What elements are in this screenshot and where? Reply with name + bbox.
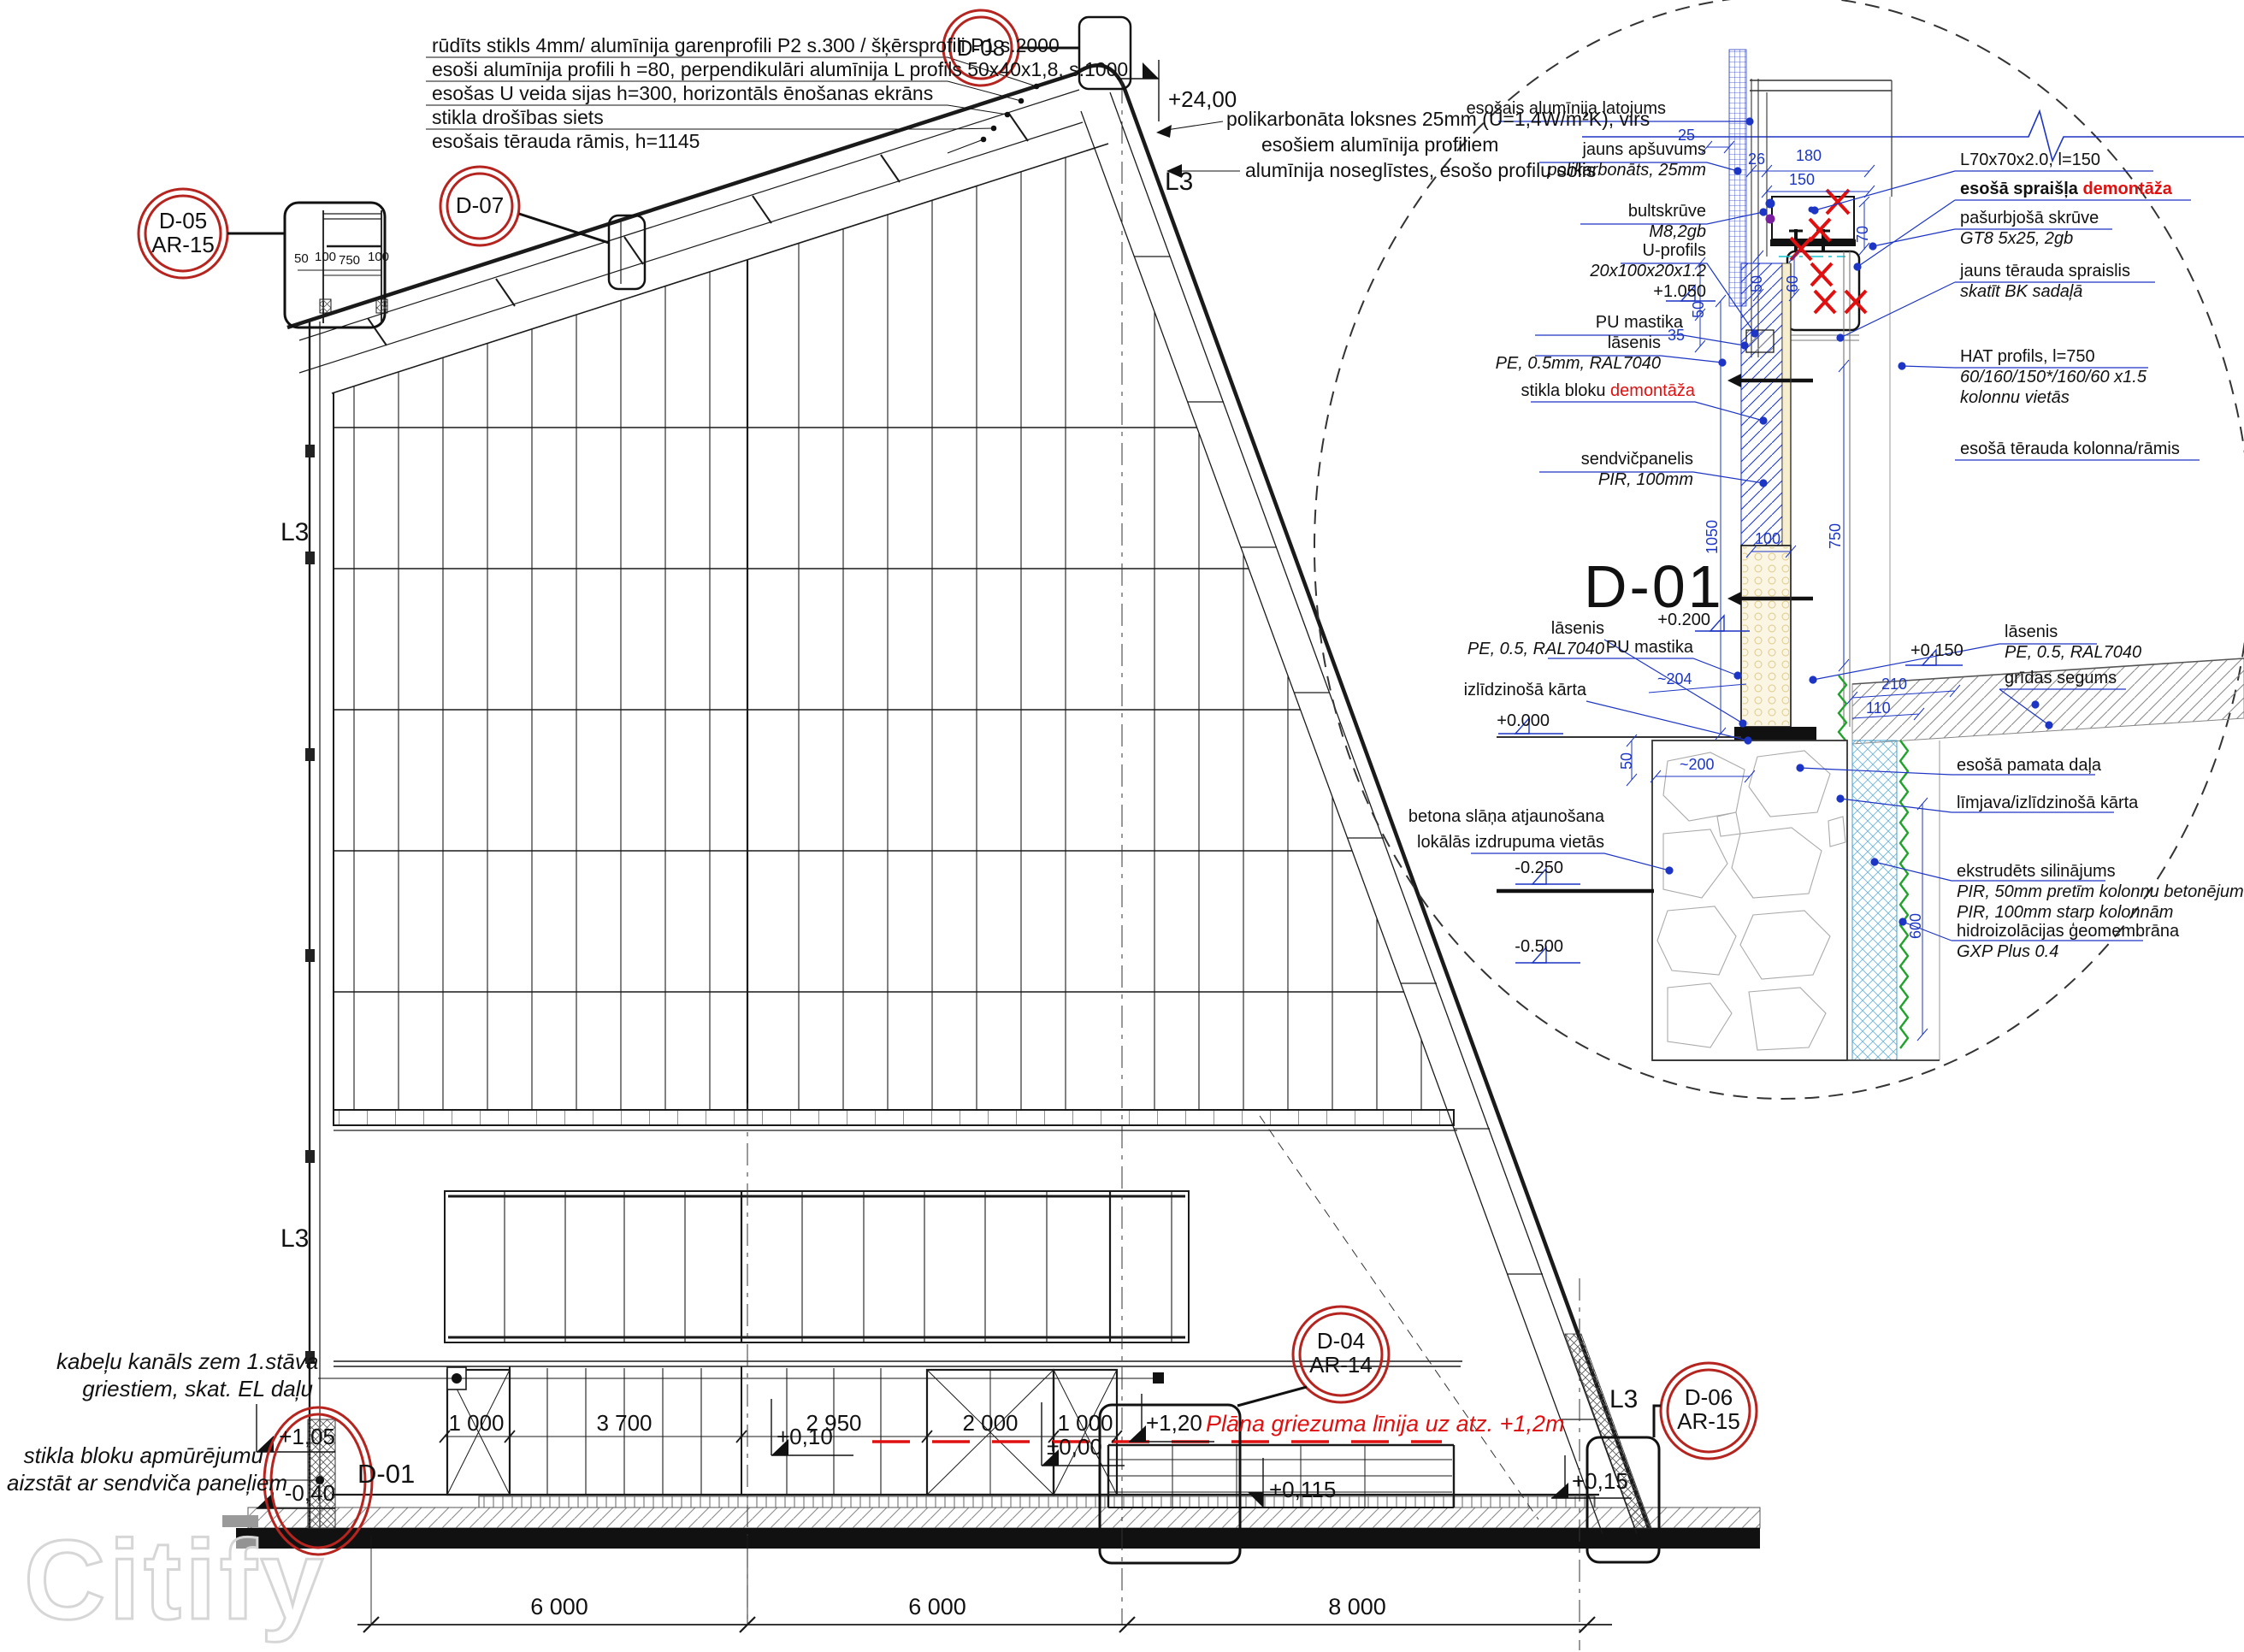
label-l3-left-lower: L3 (280, 1224, 309, 1254)
note-stikla-2: aizstāt ar sendviča paneļiem (7, 1471, 263, 1496)
detail-note-pu1: PU mastika (1426, 313, 1683, 333)
detail-note-l70: L70x70x2.0, l=150 (1960, 150, 2100, 170)
detail-note-sendvic-2: PIR, 100mm (1437, 470, 1693, 490)
detail-note-spraislis-demontaza: esošā spraišļa demontāža (1960, 180, 2172, 199)
elevation-markers (257, 60, 1632, 1508)
detail-note-hat-2: 60/160/150*/160/60 x1.5 (1960, 368, 2147, 387)
note-kabelu-2: griestiem, skat. EL daļu (56, 1377, 313, 1402)
d05-dim-100a: 100 (315, 250, 336, 264)
detail-note-lasenis3-3: grīdas segums (2005, 669, 2117, 688)
detail-note-hidro-1: hidroizolācijas ģeomembrāna (1957, 922, 2179, 941)
d05-dim-50: 50 (294, 251, 309, 266)
detail-note-lasenis2-1: lāsenis (1348, 619, 1604, 639)
callout-leaders (227, 48, 1661, 1437)
elevation-pm000: ±0,00 (1047, 1435, 1102, 1460)
detail-dim-204: ~204 (1657, 670, 1692, 688)
watermark: Citify (24, 1515, 327, 1645)
callout-d05-sheet: AR-15 (132, 233, 234, 258)
ground-assembly (222, 1496, 1760, 1549)
detail-dim-26: 26 (1748, 150, 1765, 168)
roof-left-slope (287, 65, 1125, 393)
detail-note-hat-3: kolonnu vietās (1960, 388, 2070, 408)
detail-dim-25: 25 (1678, 127, 1695, 145)
detail-note-limjava: līmjava/izlīdzinošā kārta (1957, 794, 2138, 813)
detail-note-lasenis3-2: PE, 0.5, RAL7040 (2005, 643, 2141, 663)
detail-note-uprofils-1: U-profils (1450, 241, 1706, 261)
red-cut-note: Plāna griezuma līnija uz atz. +1,2m (1206, 1411, 1564, 1437)
detail-elev-p1050: +1.050 (1450, 282, 1706, 302)
detail-dim-210: 210 (1881, 676, 1907, 693)
spec-note-2: esoši alumīnija profili h =80, perpendik… (432, 58, 1128, 80)
label-l3-top: L3 (1165, 168, 1193, 198)
detail-note-lasenis1-2: PE, 0.5mm, RAL7040 (1404, 354, 1661, 374)
drawing-linework (0, 0, 2244, 1652)
detail-dim-70: 70 (1854, 226, 1872, 243)
detail-note-ekstr-3: PIR, 100mm starp kolonnām (1957, 903, 2173, 923)
detail-elev-p0200: +0.200 (1625, 611, 1710, 630)
detail-dim-50c: 50 (1618, 752, 1636, 770)
first-floor-windows (445, 1191, 1189, 1342)
detail-note-pamata: esošā pamata daļa (1957, 756, 2101, 776)
detail-elev-p0150: +0.150 (1910, 641, 1963, 661)
section-drawing-sheet: rūdīts stikls 4mm/ alumīnija garenprofil… (0, 0, 2244, 1652)
detail-note-latojums: esošais alumīnija latojums (1409, 99, 1666, 119)
detail-dim-150: 150 (1789, 171, 1815, 189)
detail-note-hat-1: HAT profils, l=750 (1960, 347, 2095, 367)
callout-d06-sheet: AR-15 (1657, 1409, 1760, 1435)
detail-note-ekstr-1: ekstrudēts silinājums (1957, 862, 2116, 882)
glazing-grid (334, 157, 1421, 1110)
detail-note-hidro-2: GXP Plus 0.4 (1957, 942, 2058, 962)
detail-note-jauns-1: jauns tērauda spraislis (1960, 262, 2130, 281)
callout-d07-code: D-07 (428, 193, 531, 219)
callout-d05-code: D-05 (132, 209, 234, 234)
grid-dim-6000b: 6 000 (895, 1594, 980, 1620)
detail-dim-1050: 1050 (1704, 520, 1721, 554)
spraislis-demontaza-red: demontāža (2082, 180, 2171, 198)
callout-d06-code: D-06 (1657, 1385, 1760, 1411)
detail-dim-750: 750 (1827, 523, 1845, 549)
detail-dim-35: 35 (1668, 327, 1685, 345)
callout-d04-code: D-04 (1290, 1329, 1392, 1354)
detail-note-betona-1: betona slāņa atjaunošana (1348, 807, 1604, 827)
grid-dim-6000a: 6 000 (517, 1594, 602, 1620)
dim-1000-left: 1 000 (438, 1411, 515, 1437)
detail-dim-50a: 50 (1748, 275, 1766, 292)
stikla-demontaza-red: demontāža (1610, 381, 1695, 400)
d05-dim-100b: 100 (368, 250, 389, 264)
detail-dim-600: 600 (1907, 913, 1925, 939)
dim-2950: 2 950 (795, 1411, 872, 1437)
detail-note-apsuvums-1: jauns apšuvums (1450, 140, 1706, 160)
callout-d04-sheet: AR-14 (1290, 1353, 1392, 1378)
dim-1000-right: 1 000 (1047, 1411, 1124, 1437)
detail-note-uprofils-2: 20x100x20x1.2 (1450, 262, 1706, 281)
callout-d01-ref: D-01 (357, 1459, 415, 1490)
detail-dim-110: 110 (1866, 699, 1891, 717)
walkway-band (334, 1110, 1457, 1130)
detail-dim-100: 100 (1755, 530, 1780, 548)
detail-note-lasenis1-1: lāsenis (1404, 333, 1661, 353)
detail-dim-60: 60 (1784, 275, 1802, 292)
dim-2000: 2 000 (952, 1411, 1029, 1437)
detail-note-lasenis3-1: lāsenis (2005, 622, 2058, 642)
detail-elev-m0500: -0.500 (1478, 937, 1563, 957)
detail-dim-50b: 50 (1690, 301, 1708, 318)
detail-elev-p0000: +0.000 (1464, 711, 1550, 731)
detail-elev-m0250: -0.250 (1478, 858, 1563, 878)
label-l3-right-base: L3 (1609, 1385, 1638, 1415)
elevation-m040: -0,40 (250, 1481, 335, 1507)
spec-note-4: stikla drošības siets (432, 106, 604, 128)
elevation-p105: +1,05 (250, 1425, 335, 1450)
stikla-label: stikla bloku (1521, 381, 1611, 400)
detail-note-kolonna: esošā tērauda kolonna/rāmis (1960, 440, 2180, 459)
detail-dim-200: ~200 (1680, 756, 1715, 774)
detail-note-pasurb-1: pašurbjošā skrūve (1960, 209, 2099, 228)
detail-note-pasurb-2: GT8 5x25, 2gb (1960, 229, 2073, 249)
detail-note-jauns-2: skatīt BK sadaļā (1960, 282, 2082, 302)
callout-d08-code: D-08 (930, 36, 1032, 62)
d05-dim-750: 750 (339, 253, 360, 268)
detail-note-bultskruve-1: bultskrūve (1450, 202, 1706, 221)
detail-note-lasenis2-2: PE, 0.5, RAL7040 (1348, 640, 1604, 659)
detail-note-betona-2: lokālās izdrupuma vietās (1348, 833, 1604, 853)
elevation-p015: +0,15 (1572, 1469, 1628, 1495)
detail-note-bultskruve-2: M8,2gb (1450, 222, 1706, 242)
label-l3-left-upper: L3 (280, 518, 309, 548)
dim-3700: 3 700 (586, 1411, 663, 1437)
detail-note-sendvic-1: sendvičpanelis (1437, 450, 1693, 469)
note-stikla-1: stikla bloku apmūrējumu (7, 1443, 263, 1469)
detail-note-izlidz: izlīdzinošā kārta (1330, 681, 1586, 700)
spec-note-3: esošas U veida sijas h=300, horizontāls … (432, 82, 933, 104)
spraislis-label: esošā spraišļa (1960, 180, 2082, 198)
detail-note-ekstr-2: PIR, 50mm pretīm kolonnu betonējumam (1957, 882, 2244, 902)
elevation-p0115: +0,115 (1269, 1478, 1336, 1503)
left-wall (305, 322, 335, 1528)
spec-note-5: esošais tērauda rāmis, h=1145 (432, 130, 700, 152)
elevation-p120: +1,20 (1146, 1411, 1202, 1437)
detail-note-stikla-demontaza: stikla bloku demontāža (1438, 381, 1695, 401)
note-kabelu-1: kabeļu kanāls zem 1.stāva (56, 1349, 313, 1375)
detail-dim-180: 180 (1796, 147, 1822, 165)
detail-note-apsuvums-2: polikarbonāts, 25mm (1450, 161, 1706, 180)
note-leaders (267, 121, 1240, 1484)
grid-dim-8000: 8 000 (1314, 1594, 1400, 1620)
